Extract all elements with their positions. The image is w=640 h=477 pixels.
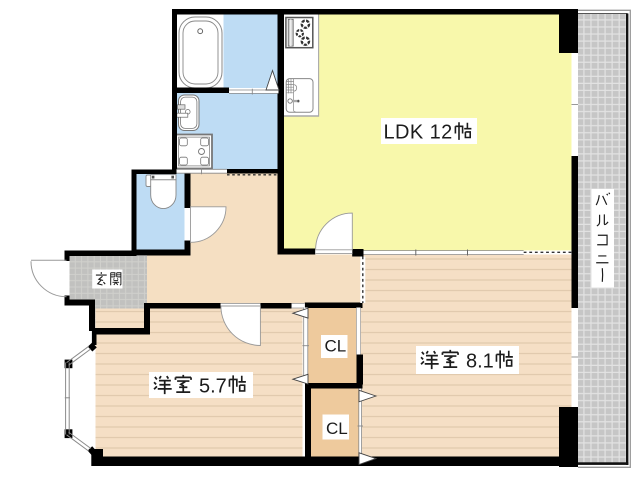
svg-text:5.7: 5.7	[199, 376, 227, 398]
svg-text:CL: CL	[326, 419, 348, 438]
svg-text:LDK 12: LDK 12	[384, 122, 453, 144]
svg-text:8.1: 8.1	[466, 351, 494, 373]
svg-text:CL: CL	[325, 337, 347, 356]
